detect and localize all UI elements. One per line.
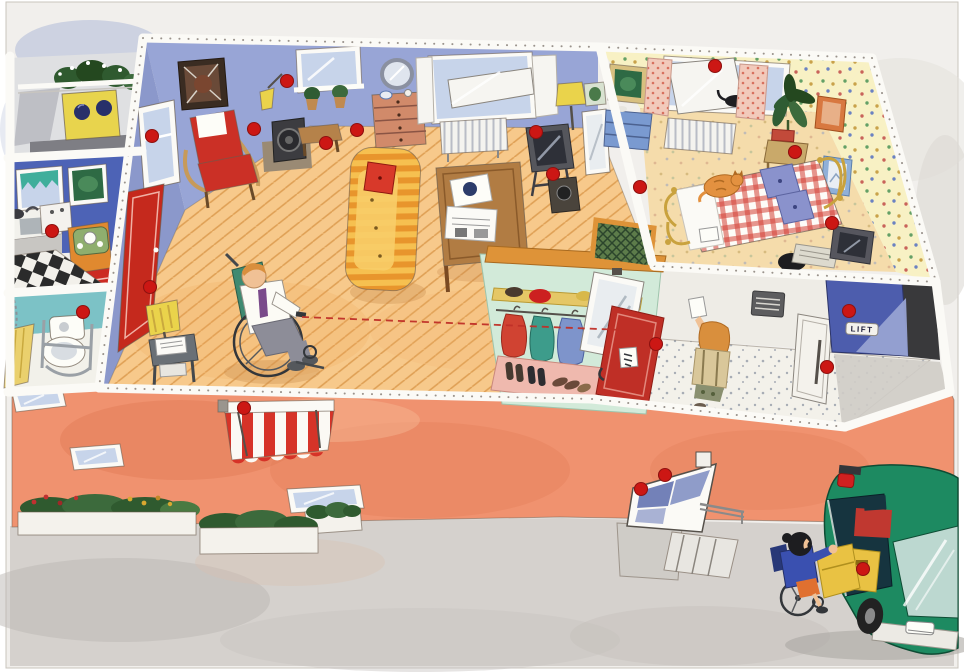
window-large [416, 52, 558, 124]
plate [380, 91, 392, 99]
feature-marker-dot [530, 126, 543, 139]
red-coat [501, 314, 526, 357]
feature-marker-dot [635, 483, 648, 496]
table-lamp-shade [146, 300, 180, 336]
feature-marker-dot [634, 181, 647, 194]
oval-mirror [380, 58, 414, 90]
vest [692, 348, 730, 388]
feature-marker-dot [146, 130, 159, 143]
name-board-plaque [751, 291, 785, 317]
illustration-canvas: LIFT [0, 0, 964, 672]
shoe [816, 607, 828, 614]
van-side-window [864, 495, 887, 511]
feature-marker-dot [248, 123, 261, 136]
feature-marker-dot [659, 469, 672, 482]
red-books [772, 129, 795, 142]
curtain-left [416, 57, 434, 124]
feature-marker-dot [320, 137, 333, 150]
feature-marker-dot [144, 281, 157, 294]
magazine-shelf [160, 363, 187, 377]
feature-marker-dot [46, 225, 59, 238]
record-cabinet [548, 177, 580, 213]
curtain-right [736, 64, 768, 120]
balcony-grill-box [62, 90, 120, 140]
head [788, 532, 812, 556]
feature-marker-dot [351, 124, 364, 137]
cup [405, 90, 412, 97]
lift-sign-label: LIFT [850, 324, 873, 334]
awning-bracket [218, 400, 228, 412]
facade-window-2 [70, 444, 124, 470]
striped-awning [218, 400, 334, 463]
newspapers [155, 336, 187, 355]
entrance-lamp [696, 452, 711, 467]
curtain-left [644, 58, 672, 116]
feature-marker-dot [650, 338, 663, 351]
feature-marker-dot [826, 217, 839, 230]
balcony [8, 52, 142, 160]
picture-orange-frame [815, 96, 846, 132]
feature-marker-dot [238, 402, 251, 415]
letter [689, 297, 707, 318]
watercolor-apartment-cutaway-illustration: LIFT [0, 0, 964, 672]
feature-marker-dot [547, 168, 560, 181]
curtain-right [532, 55, 558, 117]
teal-coat [530, 316, 554, 361]
feature-marker-dot [281, 75, 294, 88]
feature-marker-dot [709, 60, 722, 73]
feature-marker-dot [843, 305, 856, 318]
balcony-door-open [138, 100, 180, 190]
hair-bun [782, 533, 792, 543]
open-book [699, 227, 719, 242]
dark-hat [505, 287, 523, 297]
feature-marker-dot [77, 306, 90, 319]
van-seat [854, 508, 892, 538]
blue-coat [557, 318, 584, 365]
framed-picture-dark [178, 58, 228, 110]
door-handle [154, 248, 159, 253]
bedroom-radiator [664, 118, 736, 154]
flower-planter-short [199, 510, 318, 554]
feature-marker-dot [857, 563, 870, 576]
toilet-room [4, 288, 108, 397]
window-small-left [294, 46, 364, 93]
teapot [84, 232, 96, 244]
headrest-cover [196, 112, 227, 138]
feature-marker-dot [789, 146, 802, 159]
entrance-steps [664, 532, 738, 578]
feature-marker-dot [821, 361, 834, 374]
hall-door [792, 314, 832, 404]
kitchen-green-frame [68, 164, 108, 206]
red-hat [529, 289, 551, 303]
hand [829, 545, 838, 554]
